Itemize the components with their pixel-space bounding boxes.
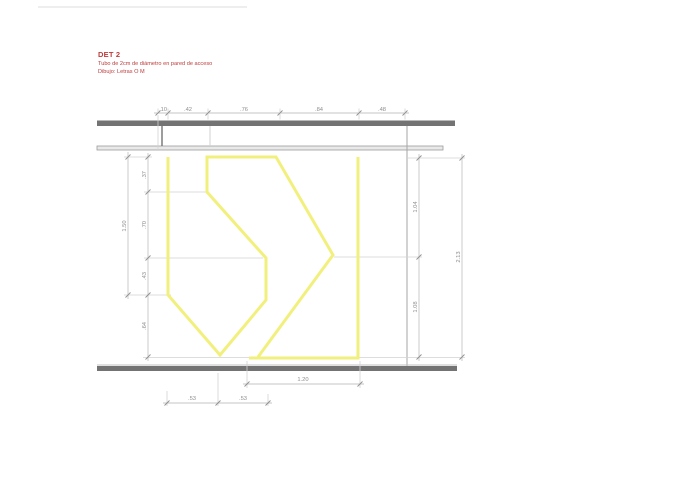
dim-label-top-42: .42 — [184, 107, 192, 113]
dim-label-left-43: .43 — [142, 272, 148, 280]
tube-segment — [168, 157, 333, 357]
wall-top-band — [97, 121, 455, 127]
tube-letters — [168, 157, 358, 358]
dim-label-left-70: .70 — [142, 221, 148, 229]
dim-label-left-64: .64 — [142, 321, 148, 330]
dim-label-bottom-53b: .53 — [239, 396, 247, 402]
wall-bottom-band — [97, 366, 457, 371]
dim-label-top-48: .48 — [378, 107, 386, 113]
dim-label-top-10: .10 — [159, 107, 167, 113]
dim-label-right-108: 1.08 — [413, 301, 419, 312]
dim-label-bottom-53a: .53 — [188, 396, 196, 402]
dim-label-top-76: .76 — [240, 107, 248, 113]
extension-lines — [124, 109, 465, 407]
dim-label-top-84: .84 — [315, 107, 324, 113]
detail-drawing: .10 .42 .76 .84 .48 1.50 .37 .70 .43 .64… — [0, 0, 700, 495]
dim-label-left-37: .37 — [142, 171, 148, 179]
dim-label-right-total: 2.13 — [456, 251, 462, 262]
dim-label-bottom-total: 1.20 — [297, 377, 308, 383]
dim-label-left-total: 1.50 — [122, 220, 128, 231]
dim-label-right-104: 1.04 — [413, 201, 419, 213]
wall-top-inner-band — [97, 146, 443, 150]
